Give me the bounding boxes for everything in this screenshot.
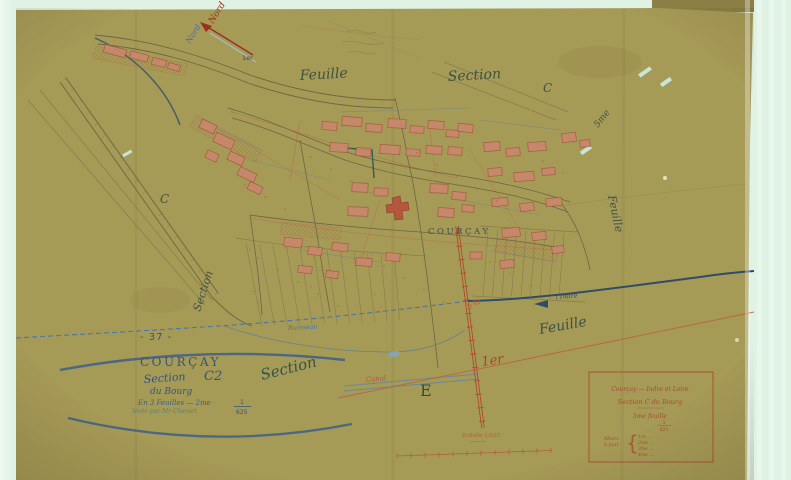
- map-sheet: Nord Nord 1er Feuille Section C C Sectio…: [0, 0, 791, 480]
- paper-vignette: [16, 8, 754, 480]
- cadastral-map-scan: Nord Nord 1er Feuille Section C C Sectio…: [0, 0, 791, 480]
